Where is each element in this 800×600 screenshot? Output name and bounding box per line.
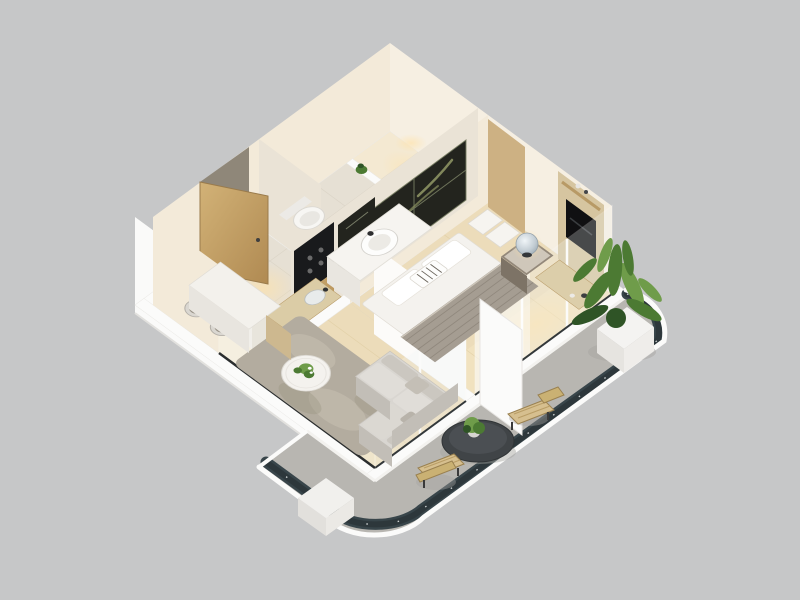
table-plant-2 xyxy=(473,422,485,434)
shelf-deco-item-2 xyxy=(584,190,588,194)
floor-plan-render xyxy=(0,0,800,600)
lamp-base xyxy=(522,253,532,258)
plant-core xyxy=(606,308,626,328)
shelf-deco-item xyxy=(576,184,581,189)
scene-canvas xyxy=(0,0,800,600)
niche-glow xyxy=(395,134,427,152)
door-handle xyxy=(256,238,260,242)
dome-lamp xyxy=(516,233,538,255)
table-plant-3 xyxy=(463,425,471,433)
